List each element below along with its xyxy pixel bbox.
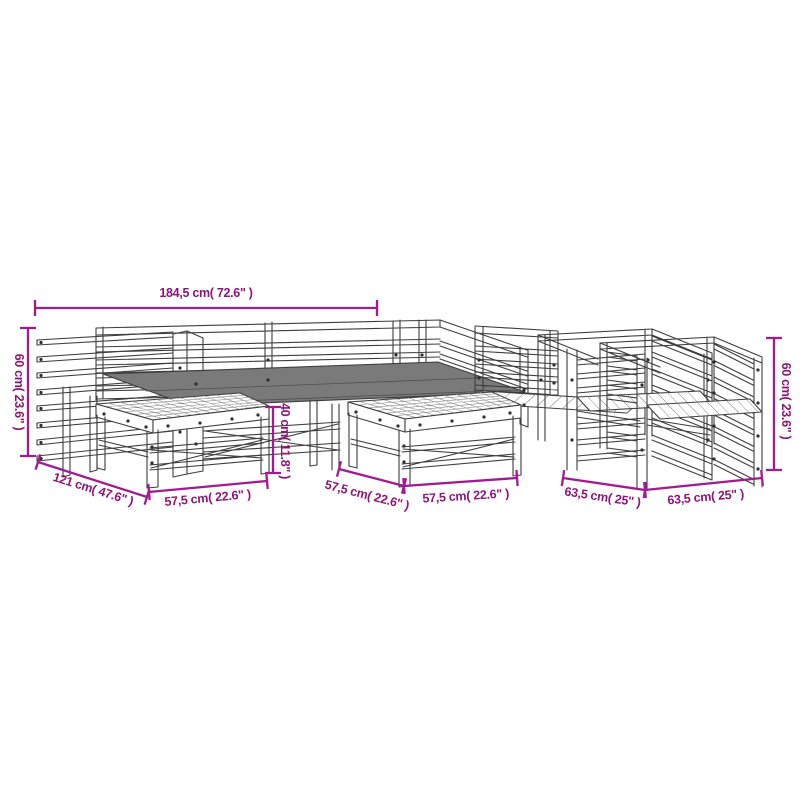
dim-label-table-center-width: 57,5 cm( 22.6" ) [422, 486, 509, 505]
dim-label-chair-width: 63,5 cm( 25" ) [667, 487, 745, 508]
dim-label-table-height: 40 cm( 11.8" ) [278, 403, 292, 479]
table-center [348, 392, 521, 487]
dim-line-overall-width [35, 300, 377, 316]
dim-label-height-right: 60 cm( 23.6" ) [779, 363, 793, 440]
product-image-canvas: 184,5 cm( 72.6" ) 60 cm( 23.6" ) 121 cm(… [0, 0, 800, 800]
product-dimension-diagram: 184,5 cm( 72.6" ) 60 cm( 23.6" ) 121 cm(… [0, 0, 800, 800]
dim-label-height-left: 60 cm( 23.6" ) [12, 354, 26, 431]
dim-label-table-center-depth: 57,5 cm( 22.6" ) [323, 478, 410, 513]
furniture-line-art [37, 320, 762, 489]
dim-label-overall-width: 184,5 cm( 72.6" ) [159, 286, 252, 300]
table-left [96, 393, 269, 488]
